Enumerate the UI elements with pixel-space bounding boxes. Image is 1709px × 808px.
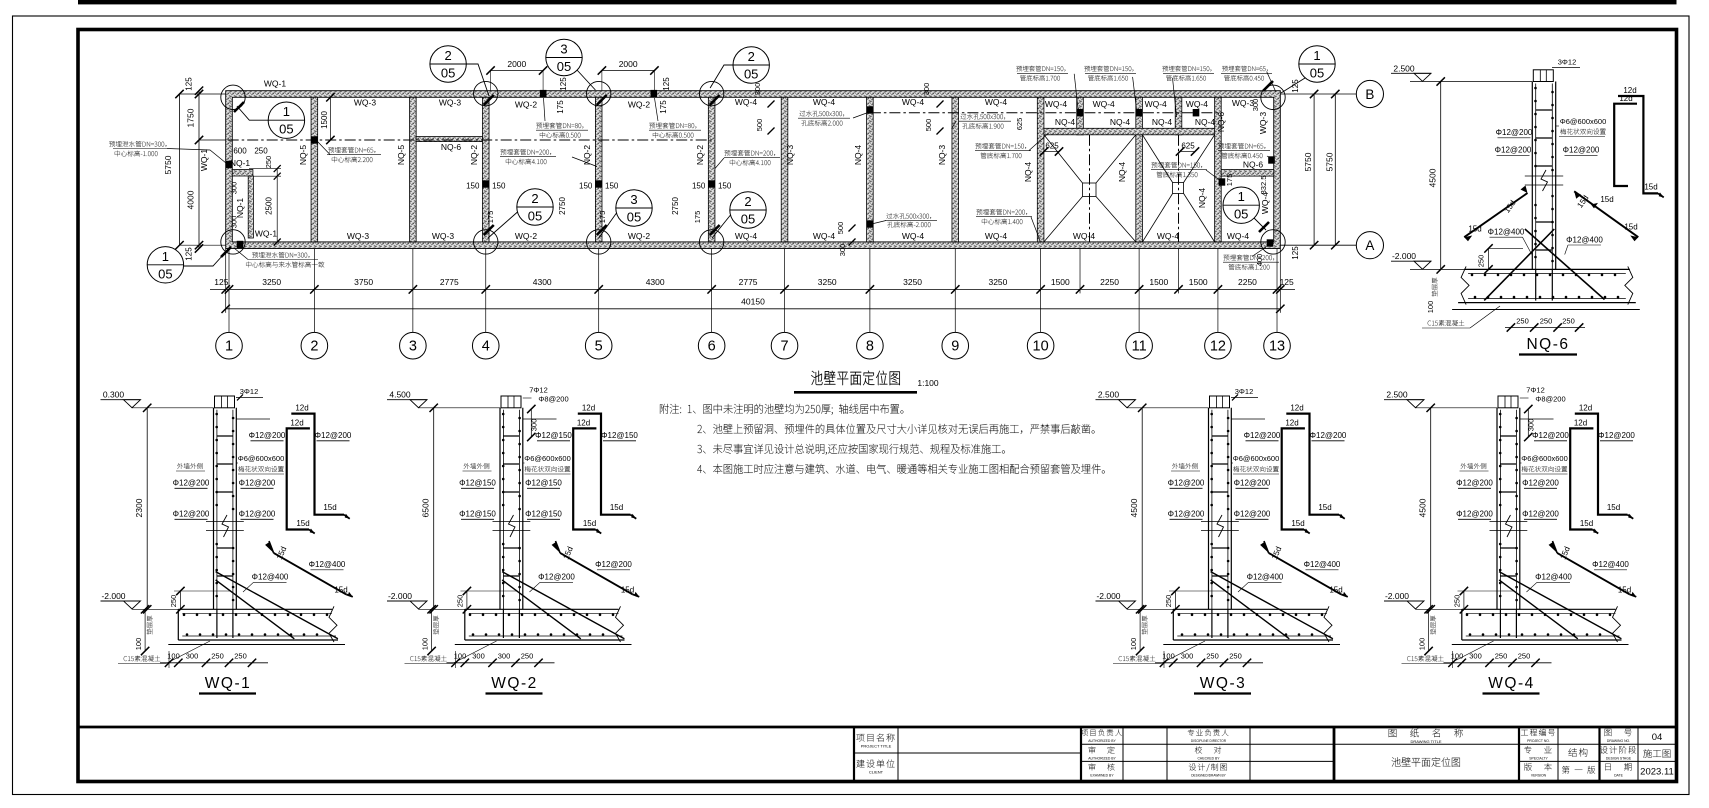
svg-text:WQ-4: WQ-4 — [985, 97, 1007, 107]
svg-text:DESIGN STAGE: DESIGN STAGE — [1606, 757, 1632, 761]
svg-text:NQ-5: NQ-5 — [298, 145, 308, 166]
svg-text:12d: 12d — [290, 418, 303, 427]
svg-text:NQ-4: NQ-4 — [1023, 162, 1033, 183]
svg-text:15d: 15d — [1329, 586, 1342, 595]
svg-text:15d: 15d — [296, 519, 309, 528]
svg-text:100: 100 — [1162, 652, 1175, 661]
svg-text:250: 250 — [521, 652, 534, 661]
svg-text:150: 150 — [579, 182, 593, 191]
svg-text:300: 300 — [753, 83, 762, 96]
svg-text:WQ-4: WQ-4 — [902, 97, 924, 107]
svg-text:2500: 2500 — [265, 197, 274, 215]
svg-text:Φ12@150: Φ12@150 — [459, 479, 496, 488]
svg-text:NQ-4: NQ-4 — [1195, 117, 1216, 127]
svg-text:WQ-4: WQ-4 — [1045, 99, 1067, 109]
svg-text:1750: 1750 — [186, 108, 196, 127]
svg-text:3250: 3250 — [903, 277, 922, 287]
svg-text:WQ-4: WQ-4 — [1145, 99, 1167, 109]
svg-text:-2.000: -2.000 — [101, 591, 125, 601]
svg-text:125: 125 — [1280, 277, 1294, 287]
svg-text:WQ-4: WQ-4 — [902, 231, 924, 241]
svg-text:NQ-2: NQ-2 — [469, 145, 479, 166]
svg-text:500: 500 — [924, 119, 933, 132]
svg-text:Φ6@600x600: Φ6@600x600 — [1233, 454, 1280, 463]
svg-text:Φ12@200: Φ12@200 — [595, 560, 632, 569]
svg-text:625: 625 — [1015, 118, 1024, 131]
svg-text:100: 100 — [421, 638, 430, 651]
svg-text:2750: 2750 — [671, 197, 680, 215]
svg-text:100: 100 — [1451, 652, 1464, 661]
svg-text:250: 250 — [1229, 652, 1242, 661]
svg-text:600: 600 — [233, 147, 247, 156]
svg-text:Φ12@400: Φ12@400 — [309, 560, 346, 569]
svg-text:05: 05 — [627, 210, 641, 225]
svg-text:2023.11: 2023.11 — [1640, 767, 1674, 778]
svg-text:WQ-4: WQ-4 — [1157, 231, 1179, 241]
svg-text:15d: 15d — [1618, 586, 1631, 595]
svg-text:2000: 2000 — [507, 59, 526, 69]
svg-text:300: 300 — [230, 182, 239, 195]
svg-text:1500: 1500 — [1189, 277, 1208, 287]
svg-text:5: 5 — [595, 339, 603, 355]
svg-text:NQ-4: NQ-4 — [1055, 117, 1076, 127]
svg-text:Φ12@200: Φ12@200 — [1234, 510, 1271, 519]
svg-text:WQ-3: WQ-3 — [354, 98, 376, 108]
svg-text:12d: 12d — [1579, 404, 1592, 413]
svg-text:Φ12@200: Φ12@200 — [1456, 479, 1493, 488]
svg-text:15d: 15d — [1644, 183, 1657, 192]
svg-text:NQ-1: NQ-1 — [230, 158, 251, 168]
svg-text:NQ-4: NQ-4 — [1197, 188, 1207, 209]
svg-text:12d: 12d — [1574, 418, 1587, 427]
svg-text:300: 300 — [472, 652, 485, 661]
svg-text:300: 300 — [1181, 652, 1194, 661]
svg-text:DATE: DATE — [1614, 774, 1624, 778]
svg-text:500: 500 — [836, 222, 845, 235]
svg-text:250: 250 — [1453, 595, 1462, 608]
svg-text:Φ12@200: Φ12@200 — [249, 431, 286, 440]
svg-text:250: 250 — [1540, 317, 1553, 326]
svg-text:5750: 5750 — [1303, 152, 1313, 171]
svg-text:250: 250 — [1518, 652, 1531, 661]
svg-text:B: B — [1365, 87, 1374, 102]
svg-text:125: 125 — [185, 247, 194, 261]
svg-text:15d: 15d — [1607, 503, 1620, 512]
svg-text:05: 05 — [528, 209, 542, 224]
svg-text:150: 150 — [605, 182, 619, 191]
svg-text:05: 05 — [1310, 66, 1324, 81]
svg-text:Φ12@200: Φ12@200 — [1563, 146, 1600, 155]
svg-text:250: 250 — [1206, 652, 1219, 661]
svg-text:AUTHORIZED BY: AUTHORIZED BY — [1088, 739, 1116, 743]
svg-text:Φ12@200: Φ12@200 — [1456, 510, 1493, 519]
svg-text:Φ6@600x600: Φ6@600x600 — [524, 454, 571, 463]
svg-text:125: 125 — [214, 277, 228, 287]
svg-text:300: 300 — [186, 652, 199, 661]
svg-text:Φ12@400: Φ12@400 — [1535, 573, 1572, 582]
svg-text:Φ12@200: Φ12@200 — [1522, 479, 1559, 488]
svg-text:1: 1 — [225, 339, 233, 355]
svg-text:3750: 3750 — [354, 277, 373, 287]
svg-text:Φ8@200: Φ8@200 — [538, 395, 568, 404]
svg-text:Φ12@150: Φ12@150 — [535, 431, 572, 440]
svg-text:Φ12@200: Φ12@200 — [239, 510, 276, 519]
svg-text:2.500: 2.500 — [1098, 390, 1120, 400]
svg-text:Φ12@200: Φ12@200 — [239, 479, 276, 488]
svg-text:100: 100 — [167, 652, 180, 661]
svg-text:5750: 5750 — [163, 155, 173, 174]
svg-text:15d: 15d — [1624, 223, 1637, 232]
svg-text:Φ12@400: Φ12@400 — [1304, 560, 1341, 569]
svg-text:WQ-3: WQ-3 — [439, 98, 461, 108]
svg-text:250: 250 — [264, 156, 273, 169]
svg-text:100: 100 — [1418, 638, 1427, 651]
svg-text:7Φ12: 7Φ12 — [529, 386, 548, 395]
svg-text:15d: 15d — [610, 503, 623, 512]
svg-text:WQ-1: WQ-1 — [205, 675, 251, 692]
svg-text:WQ-2: WQ-2 — [628, 100, 650, 110]
svg-text:300: 300 — [498, 652, 511, 661]
svg-text:2300: 2300 — [134, 498, 144, 517]
svg-text:DESIGNED/DRAWN BY: DESIGNED/DRAWN BY — [1191, 774, 1226, 778]
svg-text:05: 05 — [441, 66, 455, 81]
svg-text:NQ-6: NQ-6 — [1243, 160, 1264, 170]
svg-text:05: 05 — [557, 59, 571, 74]
svg-text:CHECKED BY: CHECKED BY — [1197, 757, 1220, 761]
svg-text:Φ12@200: Φ12@200 — [1234, 479, 1271, 488]
svg-text:300: 300 — [922, 83, 931, 96]
svg-text:NQ-6: NQ-6 — [441, 142, 462, 152]
svg-text:3250: 3250 — [262, 277, 281, 287]
svg-text:15d: 15d — [1580, 519, 1593, 528]
svg-text:4500: 4500 — [1129, 498, 1139, 517]
svg-text:1500: 1500 — [320, 111, 329, 129]
svg-text:150: 150 — [466, 182, 480, 191]
svg-text:Φ12@200: Φ12@200 — [173, 510, 210, 519]
svg-text:2: 2 — [444, 48, 451, 63]
svg-text:Φ12@200: Φ12@200 — [538, 573, 575, 582]
svg-text:2.500: 2.500 — [1386, 390, 1408, 400]
svg-text:WQ-2: WQ-2 — [515, 100, 537, 110]
svg-text:1:100: 1:100 — [917, 378, 939, 388]
svg-text:4300: 4300 — [533, 277, 552, 287]
svg-text:Φ12@200: Φ12@200 — [315, 431, 352, 440]
svg-text:05: 05 — [744, 67, 758, 82]
svg-text:250: 250 — [456, 595, 465, 608]
svg-text:8: 8 — [866, 339, 874, 355]
svg-text:-2.000: -2.000 — [1096, 591, 1120, 601]
svg-text:4500: 4500 — [1418, 498, 1428, 517]
svg-text:Φ12@200: Φ12@200 — [1244, 431, 1281, 440]
svg-text:1: 1 — [162, 249, 169, 264]
svg-text:3250: 3250 — [818, 277, 837, 287]
svg-text:DRAWING NO.: DRAWING NO. — [1607, 739, 1630, 743]
svg-text:300: 300 — [1469, 652, 1482, 661]
svg-text:175: 175 — [693, 211, 702, 224]
svg-text:3: 3 — [630, 192, 637, 207]
svg-text:WQ-2: WQ-2 — [515, 231, 537, 241]
svg-text:300: 300 — [1527, 419, 1536, 432]
svg-text:175: 175 — [598, 211, 607, 224]
svg-text:Φ12@400: Φ12@400 — [252, 573, 289, 582]
svg-text:NQ-5: NQ-5 — [396, 145, 406, 166]
svg-text:13: 13 — [1269, 339, 1285, 355]
svg-text:2775: 2775 — [440, 277, 459, 287]
svg-text:4500: 4500 — [1428, 168, 1438, 187]
svg-text:PROJECT TITLE: PROJECT TITLE — [861, 744, 892, 749]
svg-text:DRAWING TITLE: DRAWING TITLE — [1410, 739, 1441, 744]
svg-text:300: 300 — [838, 244, 847, 257]
svg-text:WQ-3: WQ-3 — [1200, 675, 1246, 692]
svg-text:WQ-4: WQ-4 — [1186, 99, 1208, 109]
svg-text:4300: 4300 — [646, 277, 665, 287]
svg-text:2.500: 2.500 — [1393, 63, 1415, 73]
svg-text:WQ-4: WQ-4 — [1227, 231, 1249, 241]
svg-text:2: 2 — [744, 194, 751, 209]
svg-text:4: 4 — [482, 339, 490, 355]
svg-text:Φ12@400: Φ12@400 — [1592, 560, 1629, 569]
svg-text:300: 300 — [530, 419, 539, 432]
svg-text:15d: 15d — [323, 503, 336, 512]
svg-text:100: 100 — [1129, 638, 1138, 651]
svg-text:300: 300 — [1251, 99, 1260, 112]
svg-text:Φ8@200: Φ8@200 — [1535, 395, 1565, 404]
svg-text:05: 05 — [741, 212, 755, 227]
svg-text:125: 125 — [559, 77, 568, 91]
svg-text:Φ6@600x600: Φ6@600x600 — [1560, 117, 1607, 126]
svg-text:250: 250 — [254, 147, 268, 156]
svg-text:-2.000: -2.000 — [388, 591, 412, 601]
svg-text:-2.000: -2.000 — [1385, 591, 1409, 601]
svg-text:SPECIALTY: SPECIALTY — [1529, 757, 1548, 761]
svg-text:Φ12@150: Φ12@150 — [525, 479, 562, 488]
svg-text:12d: 12d — [295, 404, 308, 413]
svg-text:2: 2 — [531, 191, 538, 206]
svg-text:NQ-4: NQ-4 — [1152, 117, 1173, 127]
svg-text:15d: 15d — [621, 586, 634, 595]
svg-text:15d: 15d — [1291, 519, 1304, 528]
svg-text:05: 05 — [1234, 207, 1248, 222]
svg-text:250: 250 — [234, 652, 247, 661]
svg-text:NQ-2: NQ-2 — [695, 145, 705, 166]
svg-text:05: 05 — [158, 266, 172, 281]
svg-text:125: 125 — [185, 77, 194, 91]
svg-text:DISCIPLINE DIRECTOR: DISCIPLINE DIRECTOR — [1191, 739, 1227, 743]
svg-text:250: 250 — [1495, 652, 1508, 661]
svg-text:WQ-4: WQ-4 — [813, 97, 835, 107]
svg-text:250: 250 — [1164, 595, 1173, 608]
svg-text:Φ12@200: Φ12@200 — [1168, 510, 1205, 519]
svg-text:175: 175 — [659, 100, 668, 114]
svg-text:125: 125 — [1291, 246, 1300, 260]
svg-text:WQ-2: WQ-2 — [491, 675, 537, 692]
svg-text:10: 10 — [1033, 339, 1049, 355]
svg-text:250: 250 — [1516, 317, 1529, 326]
svg-text:WQ-4: WQ-4 — [1073, 231, 1095, 241]
svg-text:Φ6@600x600: Φ6@600x600 — [1521, 454, 1568, 463]
svg-text:Φ12@150: Φ12@150 — [525, 510, 562, 519]
svg-text:-2.000: -2.000 — [1392, 251, 1416, 261]
svg-text:1500: 1500 — [1051, 277, 1070, 287]
svg-text:2775: 2775 — [739, 277, 758, 287]
svg-text:WQ-2: WQ-2 — [628, 231, 650, 241]
svg-text:WQ-4: WQ-4 — [735, 231, 757, 241]
svg-text:12d: 12d — [582, 404, 595, 413]
svg-text:WQ-4: WQ-4 — [1488, 675, 1534, 692]
svg-text:NQ-3: NQ-3 — [937, 145, 947, 166]
svg-text:12d: 12d — [1290, 404, 1303, 413]
svg-text:NQ-4: NQ-4 — [853, 145, 863, 166]
svg-text:Φ12@200: Φ12@200 — [173, 479, 210, 488]
svg-text:150: 150 — [692, 182, 706, 191]
svg-text:WQ-1: WQ-1 — [255, 229, 277, 239]
svg-text:12: 12 — [1210, 339, 1226, 355]
svg-text:0.300: 0.300 — [103, 390, 125, 400]
svg-text:CLIENT: CLIENT — [869, 770, 884, 775]
svg-text:WQ-4: WQ-4 — [813, 231, 835, 241]
svg-text:40150: 40150 — [741, 296, 765, 306]
svg-text:3Φ12: 3Φ12 — [1558, 58, 1577, 67]
svg-text:WQ-4: WQ-4 — [985, 231, 1007, 241]
svg-text:NQ-4: NQ-4 — [1110, 117, 1131, 127]
svg-text:15d: 15d — [334, 586, 347, 595]
svg-text:A: A — [1365, 238, 1374, 253]
svg-text:2000: 2000 — [619, 59, 638, 69]
svg-text:15d: 15d — [1318, 503, 1331, 512]
svg-text:PROJECT NO.: PROJECT NO. — [1527, 739, 1550, 743]
svg-text:100: 100 — [1426, 301, 1435, 314]
svg-text:Φ12@200: Φ12@200 — [1522, 510, 1559, 519]
svg-text:WQ-1: WQ-1 — [264, 79, 286, 89]
svg-text:6: 6 — [708, 339, 716, 355]
svg-text:1: 1 — [1313, 48, 1320, 63]
svg-text:2: 2 — [748, 49, 755, 64]
svg-text:11: 11 — [1132, 339, 1147, 355]
svg-text:WQ-3: WQ-3 — [1258, 112, 1268, 134]
svg-text:NQ-6: NQ-6 — [1216, 112, 1226, 133]
svg-text:3: 3 — [560, 42, 567, 57]
svg-text:250: 250 — [1562, 317, 1575, 326]
svg-text:15d: 15d — [1600, 195, 1613, 204]
svg-text:4.500: 4.500 — [389, 390, 411, 400]
svg-text:3250: 3250 — [988, 277, 1007, 287]
svg-text:NQ-1: NQ-1 — [235, 198, 245, 219]
svg-text:Φ12@150: Φ12@150 — [601, 431, 638, 440]
svg-text:EXAMINED BY: EXAMINED BY — [1090, 774, 1114, 778]
svg-text:6500: 6500 — [421, 498, 431, 517]
svg-text:15d: 15d — [1468, 225, 1481, 234]
svg-text:WQ-3: WQ-3 — [432, 231, 454, 241]
svg-text:3: 3 — [409, 339, 417, 355]
svg-text:250: 250 — [169, 595, 178, 608]
svg-text:Φ12@150: Φ12@150 — [459, 510, 496, 519]
svg-text:12d: 12d — [577, 418, 590, 427]
svg-text:4000: 4000 — [186, 190, 196, 209]
svg-text:Φ12@200: Φ12@200 — [1495, 146, 1532, 155]
svg-text:WQ-4: WQ-4 — [735, 97, 757, 107]
svg-text:Φ12@200: Φ12@200 — [1310, 431, 1347, 440]
svg-text:12d: 12d — [1619, 94, 1632, 103]
svg-text:100: 100 — [134, 638, 143, 651]
svg-text:Φ12@200: Φ12@200 — [1598, 431, 1635, 440]
svg-text:150: 150 — [718, 182, 732, 191]
svg-text:2250: 2250 — [1100, 277, 1119, 287]
svg-text:NQ-6: NQ-6 — [1526, 336, 1569, 353]
svg-text:7: 7 — [780, 339, 788, 355]
svg-text:250: 250 — [1477, 255, 1486, 268]
svg-text:Φ12@200: Φ12@200 — [1496, 128, 1533, 137]
svg-text:WQ-3: WQ-3 — [347, 231, 369, 241]
svg-text:100: 100 — [454, 652, 467, 661]
svg-text:175: 175 — [556, 100, 565, 114]
svg-text:WQ-1: WQ-1 — [199, 149, 209, 171]
svg-text:VERSION: VERSION — [1531, 774, 1547, 778]
svg-text:2250: 2250 — [1238, 277, 1257, 287]
svg-text:15d: 15d — [583, 519, 596, 528]
svg-text:150: 150 — [492, 182, 506, 191]
svg-text:NQ-2: NQ-2 — [582, 145, 592, 166]
svg-text:5750: 5750 — [1324, 152, 1334, 171]
svg-text:9: 9 — [951, 339, 959, 355]
svg-text:1500: 1500 — [1149, 277, 1168, 287]
svg-text:Φ12@200: Φ12@200 — [1532, 431, 1569, 440]
svg-text:Φ12@400: Φ12@400 — [1247, 573, 1284, 582]
svg-text:NQ-4: NQ-4 — [1117, 162, 1127, 183]
svg-text:125: 125 — [662, 77, 671, 91]
svg-text:WQ-4: WQ-4 — [1093, 99, 1115, 109]
svg-text:332.5: 332.5 — [1259, 176, 1268, 195]
svg-text:AUTHORIZED BY: AUTHORIZED BY — [1088, 757, 1116, 761]
svg-text:2750: 2750 — [558, 197, 567, 215]
svg-text:Φ12@400: Φ12@400 — [1488, 228, 1525, 237]
svg-text:Φ12@200: Φ12@200 — [1168, 479, 1205, 488]
svg-text:Φ6@600x600: Φ6@600x600 — [238, 454, 285, 463]
svg-text:300: 300 — [230, 216, 239, 229]
svg-text:1: 1 — [1238, 189, 1245, 204]
svg-text:175: 175 — [486, 211, 495, 224]
svg-text:12d: 12d — [1285, 418, 1298, 427]
svg-text:175: 175 — [1225, 174, 1234, 187]
svg-text:2: 2 — [310, 339, 318, 355]
svg-text:Φ12@400: Φ12@400 — [1566, 235, 1603, 244]
svg-text:250: 250 — [211, 652, 224, 661]
svg-text:04: 04 — [1652, 732, 1663, 743]
svg-text:1: 1 — [283, 104, 290, 119]
svg-text:NQ-3: NQ-3 — [785, 145, 795, 166]
svg-text:05: 05 — [279, 122, 293, 137]
svg-text:500: 500 — [755, 119, 764, 132]
svg-text:7Φ12: 7Φ12 — [1526, 386, 1545, 395]
